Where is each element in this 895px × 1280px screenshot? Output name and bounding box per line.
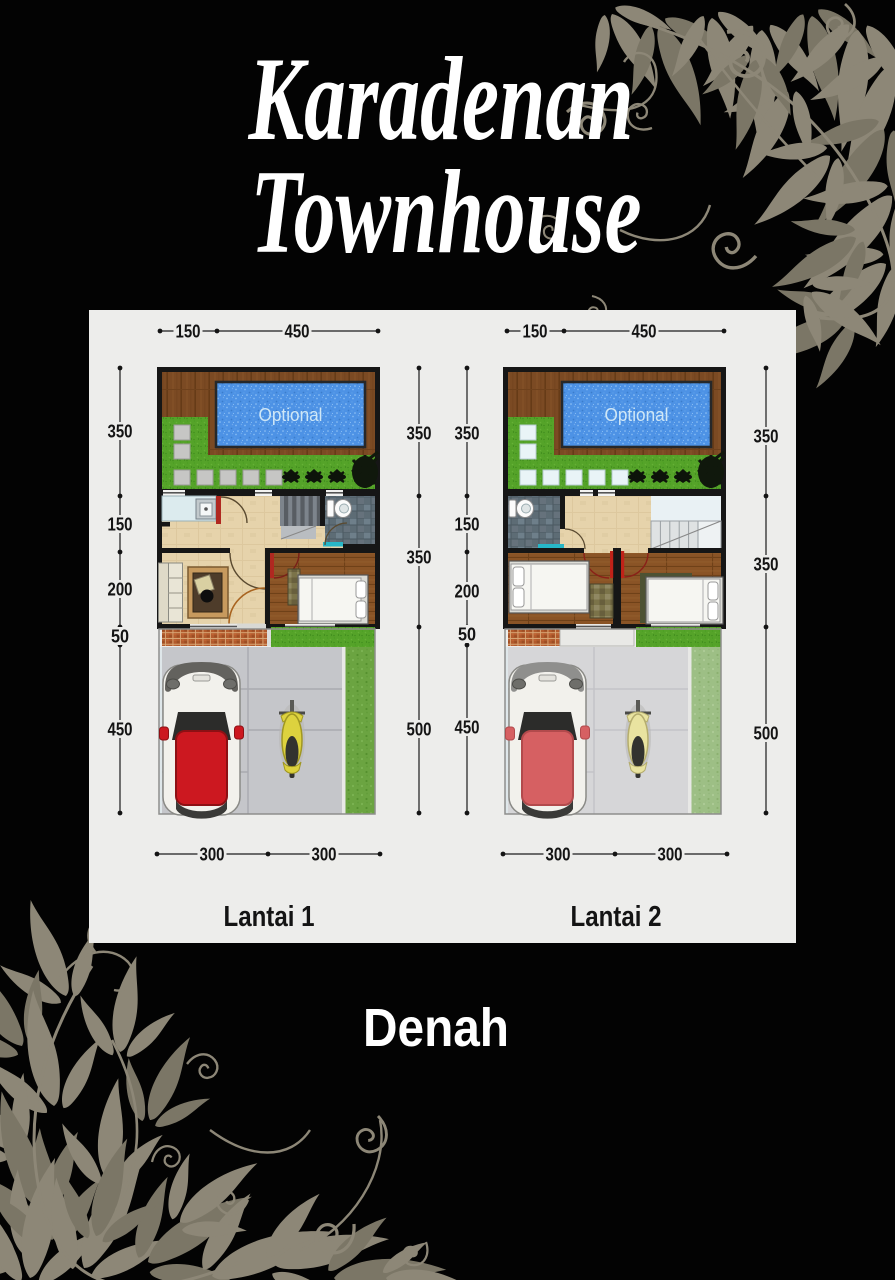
svg-text:Lantai 1: Lantai 1 bbox=[224, 901, 315, 933]
svg-text:350: 350 bbox=[407, 548, 432, 568]
svg-text:300: 300 bbox=[546, 845, 571, 865]
svg-text:150: 150 bbox=[523, 322, 548, 342]
svg-text:300: 300 bbox=[200, 845, 225, 865]
svg-text:350: 350 bbox=[108, 422, 133, 442]
svg-text:350: 350 bbox=[455, 424, 480, 444]
svg-text:500: 500 bbox=[754, 724, 779, 744]
svg-text:450: 450 bbox=[455, 718, 480, 738]
svg-text:350: 350 bbox=[754, 555, 779, 575]
svg-text:Optional: Optional bbox=[259, 405, 323, 425]
svg-text:Denah: Denah bbox=[363, 998, 509, 1058]
svg-text:350: 350 bbox=[407, 424, 432, 444]
svg-text:Optional: Optional bbox=[605, 405, 669, 425]
svg-text:50: 50 bbox=[458, 625, 476, 645]
svg-text:Townhouse: Townhouse bbox=[251, 145, 642, 278]
svg-text:300: 300 bbox=[312, 845, 337, 865]
svg-text:50: 50 bbox=[111, 627, 129, 647]
svg-text:150: 150 bbox=[108, 515, 133, 535]
svg-text:450: 450 bbox=[285, 322, 310, 342]
svg-text:200: 200 bbox=[455, 582, 480, 602]
svg-text:200: 200 bbox=[108, 580, 133, 600]
svg-text:Lantai 2: Lantai 2 bbox=[571, 901, 662, 933]
svg-text:450: 450 bbox=[108, 720, 133, 740]
svg-text:350: 350 bbox=[754, 427, 779, 447]
svg-text:450: 450 bbox=[632, 322, 657, 342]
svg-text:300: 300 bbox=[658, 845, 683, 865]
svg-text:150: 150 bbox=[455, 515, 480, 535]
svg-text:150: 150 bbox=[176, 322, 201, 342]
svg-text:500: 500 bbox=[407, 720, 432, 740]
